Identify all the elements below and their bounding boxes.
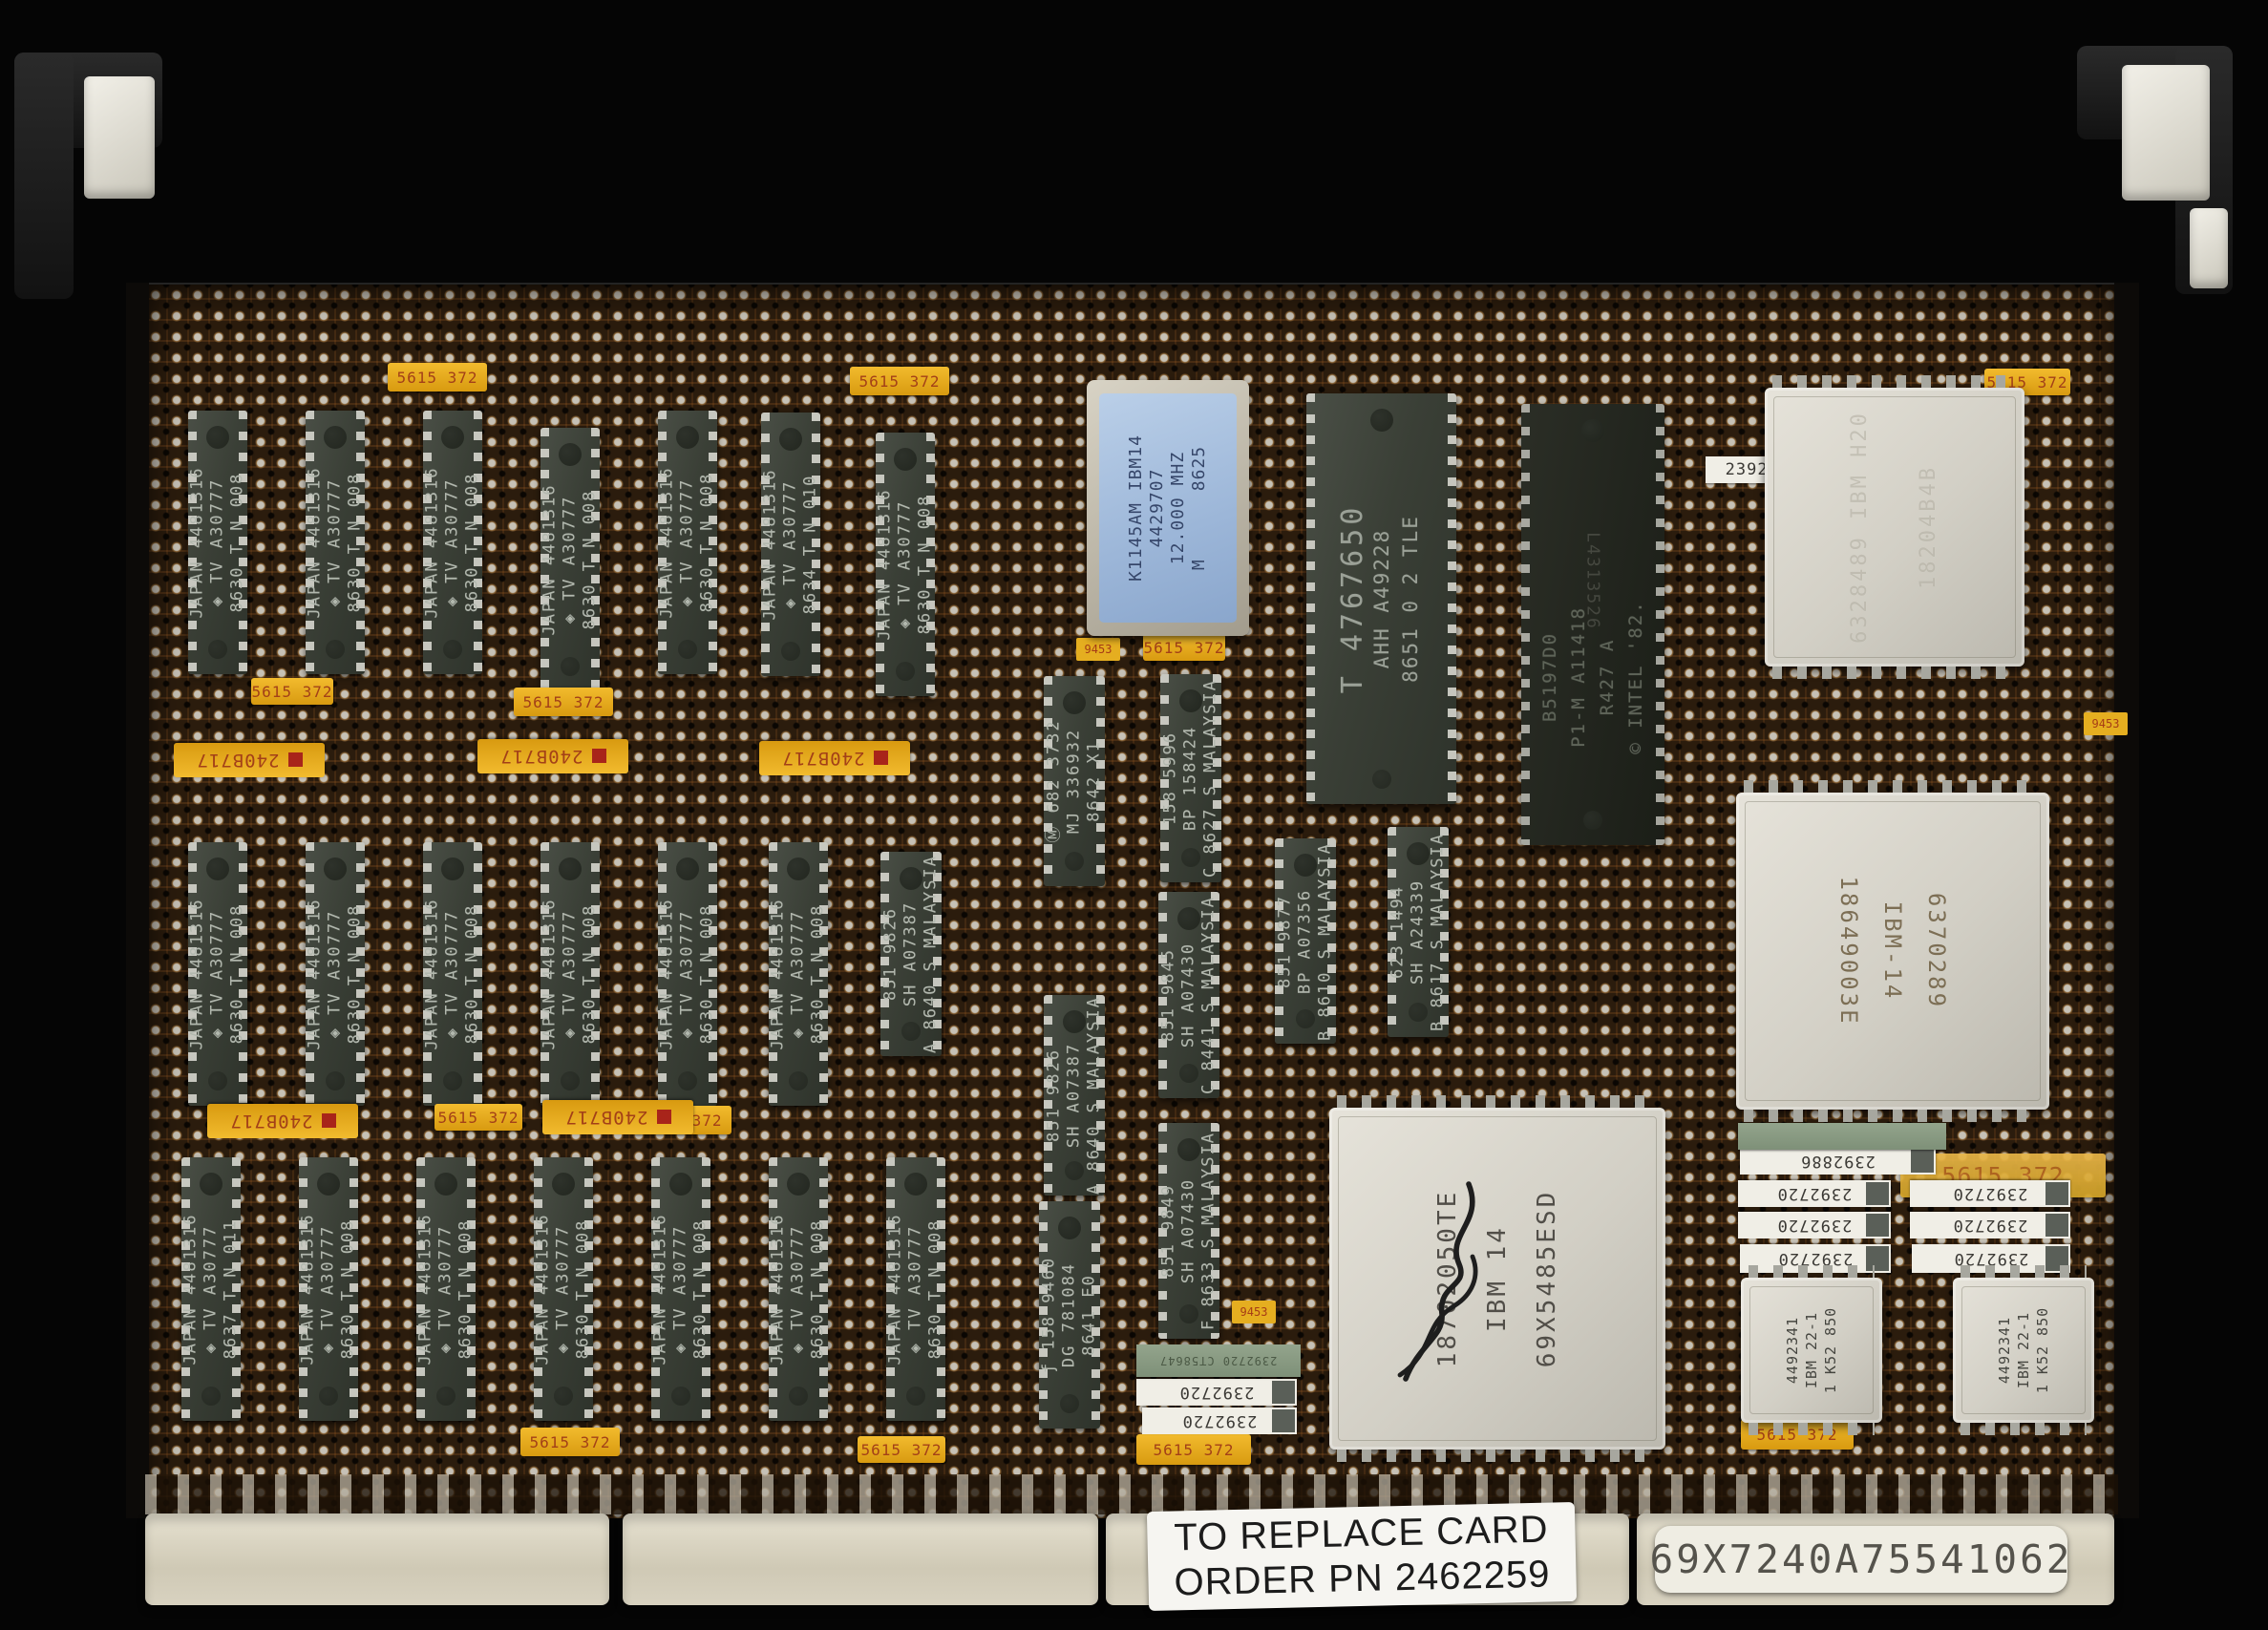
- sticker-yellow-reversed: 240B717: [207, 1104, 358, 1138]
- sticker-text: 240B717: [229, 1111, 312, 1132]
- sticker-text: 2392720: [1953, 1216, 2028, 1235]
- chip-marking: C 8441 S MALAYSIA: [1199, 896, 1219, 1094]
- sticker-yellow-reversed: 240B717: [759, 741, 910, 775]
- chip-marking: ◈ TV A30777: [436, 1225, 456, 1354]
- dip-chip-logic: ƒ 158 9460DG 7810848641 E0: [1039, 1201, 1100, 1429]
- chip-marking: T 4767650: [1339, 504, 1367, 694]
- can-marking: 4492341: [1783, 1317, 1802, 1384]
- chip-marking: JAPAN 4481316: [299, 1213, 319, 1365]
- chip-marking: JAPAN 4481316: [541, 483, 561, 635]
- sticker-white: 2392720: [1738, 1212, 1891, 1238]
- dip-chip-memory: JAPAN 4481316◈ TV A307778630 T N 008: [541, 428, 600, 691]
- chip-marking: 8630 T N 008: [339, 1219, 359, 1360]
- chip-marking: ◈ TV A30777: [671, 1225, 691, 1354]
- chip-marking: 8634 T N 010: [801, 475, 821, 615]
- sticker-white: 2392720: [1910, 1180, 2070, 1207]
- can-pins: [1744, 1110, 2042, 1122]
- dip-chip-memory: JAPAN 4481316◈ TV A307778630 T N 008: [651, 1157, 710, 1421]
- can-pins: [1772, 667, 2017, 679]
- chip-marking: 8630 T N 008: [691, 1219, 711, 1360]
- chip-marking: JAPAN 4481316: [651, 1213, 671, 1365]
- sticker-text: 2392720: [1777, 1216, 1853, 1235]
- dip-chip-memory: JAPAN 4481316◈ TV A307778630 T N 008: [658, 411, 717, 674]
- sticker-text: 2392886: [1800, 1152, 1876, 1171]
- chip-marking: SH A24339: [1409, 879, 1429, 984]
- sticker-text: 240B717: [564, 1107, 647, 1128]
- sticker-text: 2392720: [1777, 1184, 1853, 1203]
- chip-marking: ◈ TV A30777: [319, 1225, 339, 1354]
- chip-marking: SH A07430: [1179, 942, 1199, 1048]
- sticker-text: 9453: [1085, 643, 1113, 656]
- chip-marking: 8630 T N 008: [574, 1219, 594, 1360]
- sticker-white: 2392720: [1910, 1212, 2070, 1238]
- sticker-text: 5615 372: [522, 693, 604, 711]
- sticker-white: 2392720: [1738, 1180, 1891, 1207]
- chip-marking: ◈ TV A30777: [561, 496, 581, 624]
- can-pins: [1337, 1450, 1658, 1462]
- oscillator-marking: K1145AM IBM14: [1126, 434, 1147, 582]
- sticker-text: 2392720: [1179, 1383, 1255, 1402]
- sticker-text: 5615 372: [437, 1109, 519, 1127]
- dip-chip-logic: 623 1494SH A24339B 8617 S MALAYSIA: [1388, 827, 1449, 1037]
- chip-marking: ◈ TV A30777: [678, 910, 698, 1039]
- sticker-text: 5615 372: [529, 1433, 610, 1451]
- sticker-text: 5615 372: [396, 369, 477, 387]
- dip-chip-memory: JAPAN 4481316◈ TV A307778630 T N 008: [769, 842, 828, 1106]
- chip-marking: 8630 T N 008: [581, 904, 601, 1045]
- chip-marking: BP 158424: [1181, 726, 1201, 831]
- dip-chip-memory: JAPAN 4481316◈ TV A307778630 T N 008: [299, 1157, 358, 1421]
- chip-marking: 851 9849: [1159, 1184, 1179, 1278]
- sticker-yellow: 5615 372: [435, 1104, 522, 1131]
- sticker-text: 5615 372: [251, 683, 332, 701]
- circuit-board-photo: JAPAN 4481316◈ TV A307778630 T N 008JAPA…: [0, 0, 2268, 1630]
- chip-marking: 158 5996: [1161, 731, 1181, 825]
- can-pins: [1749, 1423, 1875, 1435]
- chip-marking: 8642 X1: [1085, 740, 1105, 822]
- chip-marking: MJ 336932: [1065, 729, 1085, 834]
- dip-chip-logic: Ⓜ 682 3732MJ 3369328642 X1: [1044, 676, 1105, 886]
- chip-marking: ◈ TV A30777: [443, 478, 463, 607]
- chip-marking: SH A07387: [901, 901, 922, 1006]
- sticker-yellow: 5615 372: [520, 1428, 620, 1456]
- chip-marking: 8630 T N 008: [809, 904, 829, 1045]
- chip-marking: JAPAN 4481316: [769, 898, 789, 1049]
- sticker-yellow-reversed: 240B717: [477, 739, 628, 773]
- can-pins: [1772, 375, 2017, 388]
- handwritten-scribble: [1358, 1165, 1530, 1404]
- intel-chip: L4313526 B5197D0 P1-M A11418 R427 A © IN…: [1521, 404, 1664, 845]
- chip-marking: JAPAN 4481316: [423, 898, 443, 1049]
- chip-marking: B 8610 S MALAYSIA: [1316, 842, 1336, 1041]
- sticker-yellow: 5615 372: [850, 367, 949, 395]
- chip-marking: ƒ 158 9460: [1040, 1257, 1060, 1373]
- chip-marking: ◈ TV A30777: [561, 910, 581, 1039]
- can-marking: IBM 22-1: [2014, 1312, 2033, 1388]
- chip-marking: 8630 T N 008: [926, 1219, 946, 1360]
- chip-marking: ◈ TV A30777: [896, 500, 916, 629]
- replace-card-line2: ORDER PN 2462259: [1174, 1553, 1551, 1606]
- chip-marking: JAPAN 4481316: [761, 468, 781, 620]
- dip-chip-memory: JAPAN 4481316◈ TV A307778630 T N 008: [876, 433, 935, 696]
- chip-marking: 851 9845: [1159, 948, 1179, 1042]
- oscillator-marking: 4429707: [1147, 469, 1168, 548]
- chip-marking: JAPAN 4481316: [306, 466, 326, 618]
- metal-can-top-right: 6328489 IBM H20 18204B4B: [1765, 388, 2024, 667]
- sticker-text: 5615 372: [860, 1441, 942, 1459]
- chip-marking: © INTEL '82.: [1622, 601, 1650, 754]
- can-pins: [1749, 1265, 1875, 1278]
- chip-marking: 8630 T N 008: [698, 473, 718, 613]
- chip-marking: AHH A49228: [1367, 529, 1396, 668]
- chip-marking: JAPAN 4481316: [188, 898, 208, 1049]
- can-marking: 1 K52 850: [2033, 1307, 2052, 1393]
- dip-chip-memory: JAPAN 4481316◈ TV A307778630 T N 008: [306, 842, 365, 1106]
- sticker-text: 5615 372: [858, 372, 940, 391]
- chip-marking: ◈ TV A30777: [789, 1225, 809, 1354]
- metal-can-small-left: 4492341 IBM 22-1 1 K52 850: [1741, 1278, 1882, 1423]
- sticker-text: 9453: [1240, 1305, 1268, 1319]
- chip-marking: ◈ TV A30777: [906, 1225, 926, 1354]
- bottom-connector: [623, 1514, 1098, 1605]
- sticker-mini-tag: 9453: [1076, 638, 1120, 661]
- dip-chip-memory: JAPAN 4481316◈ TV A307778630 T N 008: [306, 411, 365, 674]
- chip-marking: 851 9826: [1045, 1048, 1065, 1142]
- chip-marking: ◈ TV A30777: [326, 910, 346, 1039]
- chip-marking: 8630 T N 008: [228, 904, 248, 1045]
- chip-marking: 8651 0 2 TLE: [1396, 515, 1425, 683]
- sticker-text: 240B717: [196, 750, 279, 771]
- chip-marking: 8630 T N 008: [228, 473, 248, 613]
- chip-marking: ◈ TV A30777: [781, 480, 801, 609]
- chip-marking: JAPAN 4481316: [416, 1213, 436, 1365]
- sticker-white: 2392720: [1142, 1408, 1297, 1434]
- chip-marking: ◈ TV A30777: [789, 910, 809, 1039]
- dip-chip-memory: JAPAN 4481316◈ TV A307778630 T N 008: [188, 842, 247, 1106]
- can-marking: 6370289: [1915, 893, 1959, 1009]
- chip-marking: 8630 T N 008: [346, 904, 366, 1045]
- dip-chip-memory: JAPAN 4481316◈ TV A307778630 T N 008: [188, 411, 247, 674]
- chip-marking: 8630 T N 008: [456, 1219, 477, 1360]
- chip-marking: JAPAN 4481316: [423, 466, 443, 618]
- chip-marking: DG 781084: [1060, 1262, 1080, 1367]
- chip-marking: JAPAN 4481316: [876, 488, 896, 640]
- chip-marking: 8630 T N 008: [809, 1219, 829, 1360]
- chip-marking: JAPAN 4481316: [541, 898, 561, 1049]
- chip-marking: ◈ TV A30777: [554, 1225, 574, 1354]
- sticker-text: 5615 372: [1153, 1441, 1234, 1459]
- oscillator-marking: M 8625: [1189, 446, 1210, 570]
- can-marking: IBM-14: [1871, 901, 1915, 1002]
- green-module: [1738, 1123, 1946, 1150]
- chip-marking: 851 9826: [881, 907, 901, 1001]
- sticker-mini-tag: 9453: [2084, 712, 2128, 735]
- chip-marking: B5197D0: [1536, 632, 1564, 722]
- chip-marking: 851 9877: [1276, 895, 1296, 988]
- chip-marking: ◈ TV A30777: [208, 910, 228, 1039]
- chip-marking: Ⓜ 682 3732: [1045, 719, 1065, 842]
- sticker-mini-tag: 9453: [1232, 1301, 1276, 1323]
- chip-marking: 8637 T N 011: [222, 1219, 242, 1360]
- chip-marking: JAPAN 4481316: [181, 1213, 201, 1365]
- bottom-connector: [145, 1514, 609, 1605]
- dip-chip-memory: JAPAN 4481316◈ TV A307778630 T N 008: [534, 1157, 593, 1421]
- dip-chip-logic: 851 9877BP A07356B 8610 S MALAYSIA: [1275, 838, 1336, 1044]
- dip-chip-memory: JAPAN 4481316◈ TV A307778630 T N 008: [769, 1157, 828, 1421]
- chip-marking: JAPAN 4481316: [658, 898, 678, 1049]
- chip-marking: ◈ TV A30777: [208, 478, 228, 607]
- green-module: 2392720 CT58647: [1136, 1344, 1301, 1377]
- dip-chip-memory: JAPAN 4481316◈ TV A307778630 T N 008: [423, 842, 482, 1106]
- chip-marking: 623 1494: [1388, 885, 1409, 979]
- chip-marking: F 8633 S MALAYSIA: [1199, 1132, 1219, 1330]
- chip-marking: B 8617 S MALAYSIA: [1429, 833, 1449, 1031]
- dip-chip-logic: 851 9849SH A07430F 8633 S MALAYSIA: [1158, 1123, 1219, 1339]
- oscillator-face: K1145AM IBM14 4429707 12.000 MHZ M 8625: [1099, 393, 1237, 623]
- edge-pin-strip: [145, 1474, 2118, 1514]
- chip-marking: JAPAN 4481316: [886, 1213, 906, 1365]
- can-pins: [1744, 780, 2042, 793]
- sticker-text: 2392720: [1182, 1411, 1258, 1430]
- metal-can-right: 6370289 IBM-14 18649003E: [1736, 793, 2049, 1110]
- chip-marking: ◈ TV A30777: [678, 478, 698, 607]
- sticker-yellow: 5615 372: [1143, 634, 1225, 661]
- chip-marking: A 8640 S MALAYSIA: [922, 855, 942, 1053]
- chip-marking: JAPAN 4481316: [658, 466, 678, 618]
- sticker-text: 240B717: [499, 746, 583, 767]
- sticker-white: 2392720: [1136, 1379, 1297, 1406]
- dip-chip-logic: 851 9826SH A07387A 8640 S MALAYSIA: [1044, 995, 1105, 1196]
- dip-chip-memory: JAPAN 4481316◈ TV A307778630 T N 008: [541, 842, 600, 1106]
- sticker-yellow: 5615 372: [251, 678, 333, 705]
- chip-marking: ◈ TV A30777: [443, 910, 463, 1039]
- sticker-text: 9453: [2092, 717, 2120, 730]
- can-marking: 18649003E: [1827, 876, 1871, 1026]
- sticker-yellow-reversed: 240B717: [542, 1100, 693, 1134]
- dip-chip-memory: JAPAN 4481316◈ TV A307778630 T N 008: [416, 1157, 476, 1421]
- sticker-yellow: 5615 372: [514, 688, 613, 716]
- chip-marking: SH A07430: [1179, 1178, 1199, 1283]
- chip-marking: 8630 T N 008: [463, 904, 483, 1045]
- chip-marking: 8630 T N 008: [346, 473, 366, 613]
- metal-can-small-right: 4492341 IBM 22-1 1 K52 850: [1953, 1278, 2094, 1423]
- chip-marking: 8641 E0: [1080, 1274, 1100, 1356]
- chip-marking: JAPAN 4481316: [769, 1213, 789, 1365]
- oscillator-marking: 12.000 MHZ: [1168, 452, 1189, 564]
- metal-can-bottom-center: 69X5485ESD IBM 14 18702050TE: [1329, 1108, 1665, 1450]
- dip-chip-memory: JAPAN 4481316◈ TV A307778630 T N 008: [886, 1157, 945, 1421]
- serial-number-label: 69X7240A75541062: [1655, 1526, 2067, 1593]
- dip-chip-memory: JAPAN 4481316◈ TV A307778634 T N 010: [761, 413, 820, 676]
- can-marking: 4492341: [1995, 1317, 2014, 1384]
- chip-marking: 8630 T N 008: [463, 473, 483, 613]
- sticker-yellow: 5615 372: [858, 1436, 945, 1463]
- chip-marking: JAPAN 4481316: [306, 898, 326, 1049]
- sticker-white: 2392886: [1740, 1148, 1936, 1175]
- replace-card-label: TO REPLACE CARD ORDER PN 2462259: [1147, 1502, 1577, 1611]
- chip-marking: JAPAN 4481316: [534, 1213, 554, 1365]
- sticker-yellow-reversed: 240B717: [174, 743, 325, 777]
- can-pins: [1961, 1265, 2087, 1278]
- dip-chip-logic: 851 9826SH A07387A 8640 S MALAYSIA: [880, 852, 942, 1056]
- chip-marking: C 8627 S MALAYSIA: [1201, 679, 1221, 878]
- chip-marking: ◈ TV A30777: [201, 1225, 222, 1354]
- chip-marking: P1-M A11418: [1564, 607, 1593, 749]
- dip-chip-memory: JAPAN 4481316◈ TV A307778637 T N 011: [181, 1157, 241, 1421]
- chip-marking: BP A07356: [1296, 888, 1316, 993]
- sticker-yellow: 5615 372: [1136, 1434, 1251, 1465]
- dip-chip-logic: 851 9845SH A07430C 8441 S MALAYSIA: [1158, 892, 1219, 1098]
- chip-marking: R427 A: [1593, 639, 1622, 716]
- chip-marking: A 8640 S MALAYSIA: [1085, 996, 1105, 1195]
- chip-marking: 8630 T N 008: [698, 904, 718, 1045]
- can-marking-faint: 6328489 IBM H20: [1826, 411, 1895, 644]
- dip-chip-memory: JAPAN 4481316◈ TV A307778630 T N 008: [423, 411, 482, 674]
- can-marking: IBM 22-1: [1802, 1312, 1821, 1388]
- chip-marking: 8630 T N 008: [581, 490, 601, 630]
- chip-marking: 8630 T N 008: [916, 495, 936, 635]
- can-pins: [1961, 1423, 2087, 1435]
- green-module-marking: 2392720 CT58647: [1159, 1354, 1277, 1367]
- ti-rom-chip: T 4767650 AHH A49228 8651 0 2 TLE: [1306, 393, 1456, 804]
- dip-chip-logic: 158 5996BP 158424C 8627 S MALAYSIA: [1160, 674, 1221, 882]
- chip-marking: SH A07387: [1065, 1043, 1085, 1148]
- can-pins: [1337, 1095, 1658, 1108]
- serial-number-text: 69X7240A75541062: [1650, 1536, 2073, 1582]
- sticker-text: 240B717: [781, 748, 864, 769]
- chip-marking: JAPAN 4481316: [188, 466, 208, 618]
- can-marking-faint: 18204B4B: [1895, 465, 1963, 589]
- chip-marking: ◈ TV A30777: [326, 478, 346, 607]
- sticker-yellow: 5615 372: [388, 363, 487, 392]
- sticker-text: 2392720: [1953, 1184, 2028, 1203]
- can-marking: 1 K52 850: [1821, 1307, 1840, 1393]
- dip-chip-memory: JAPAN 4481316◈ TV A307778630 T N 008: [658, 842, 717, 1106]
- crystal-oscillator: K1145AM IBM14 4429707 12.000 MHZ M 8625: [1087, 380, 1249, 636]
- sticker-text: 5615 372: [1143, 639, 1224, 657]
